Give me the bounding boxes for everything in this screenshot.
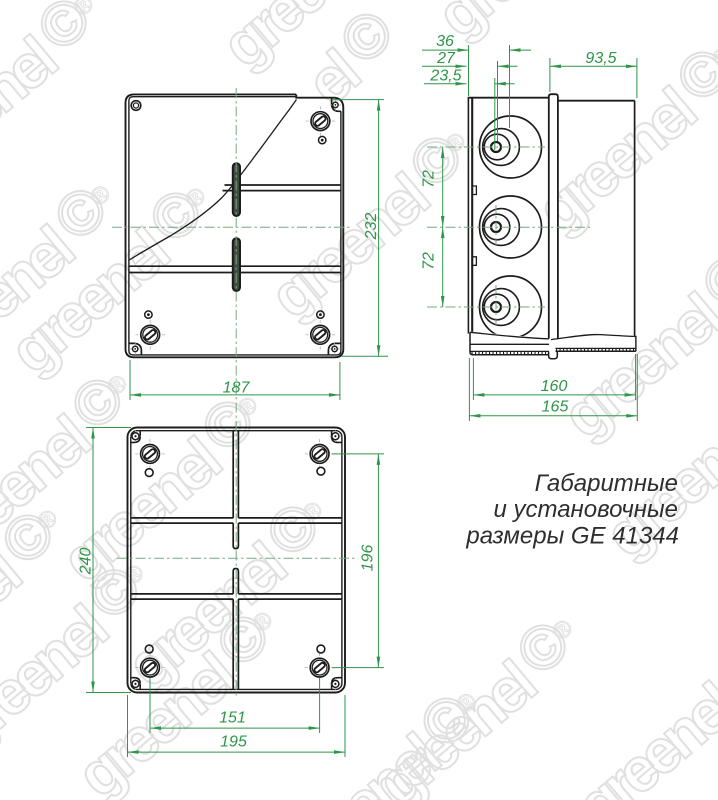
svg-text:93,5: 93,5 [585, 50, 616, 67]
svg-text:165: 165 [542, 399, 569, 416]
svg-text:и установочные: и установочные [493, 496, 678, 523]
svg-text:размеры GE 41344: размеры GE 41344 [465, 523, 679, 550]
svg-text:195: 195 [220, 734, 247, 751]
svg-text:232: 232 [363, 213, 380, 241]
svg-text:23,5: 23,5 [429, 68, 461, 85]
svg-text:196: 196 [360, 545, 377, 572]
svg-text:240: 240 [78, 548, 95, 576]
svg-text:72: 72 [421, 170, 438, 188]
svg-text:27: 27 [436, 50, 456, 67]
svg-text:72: 72 [421, 252, 438, 270]
svg-text:36: 36 [436, 33, 454, 50]
svg-text:187: 187 [223, 380, 251, 397]
svg-text:160: 160 [541, 378, 568, 395]
svg-text:Габаритные: Габаритные [535, 470, 678, 497]
svg-text:151: 151 [219, 710, 246, 727]
